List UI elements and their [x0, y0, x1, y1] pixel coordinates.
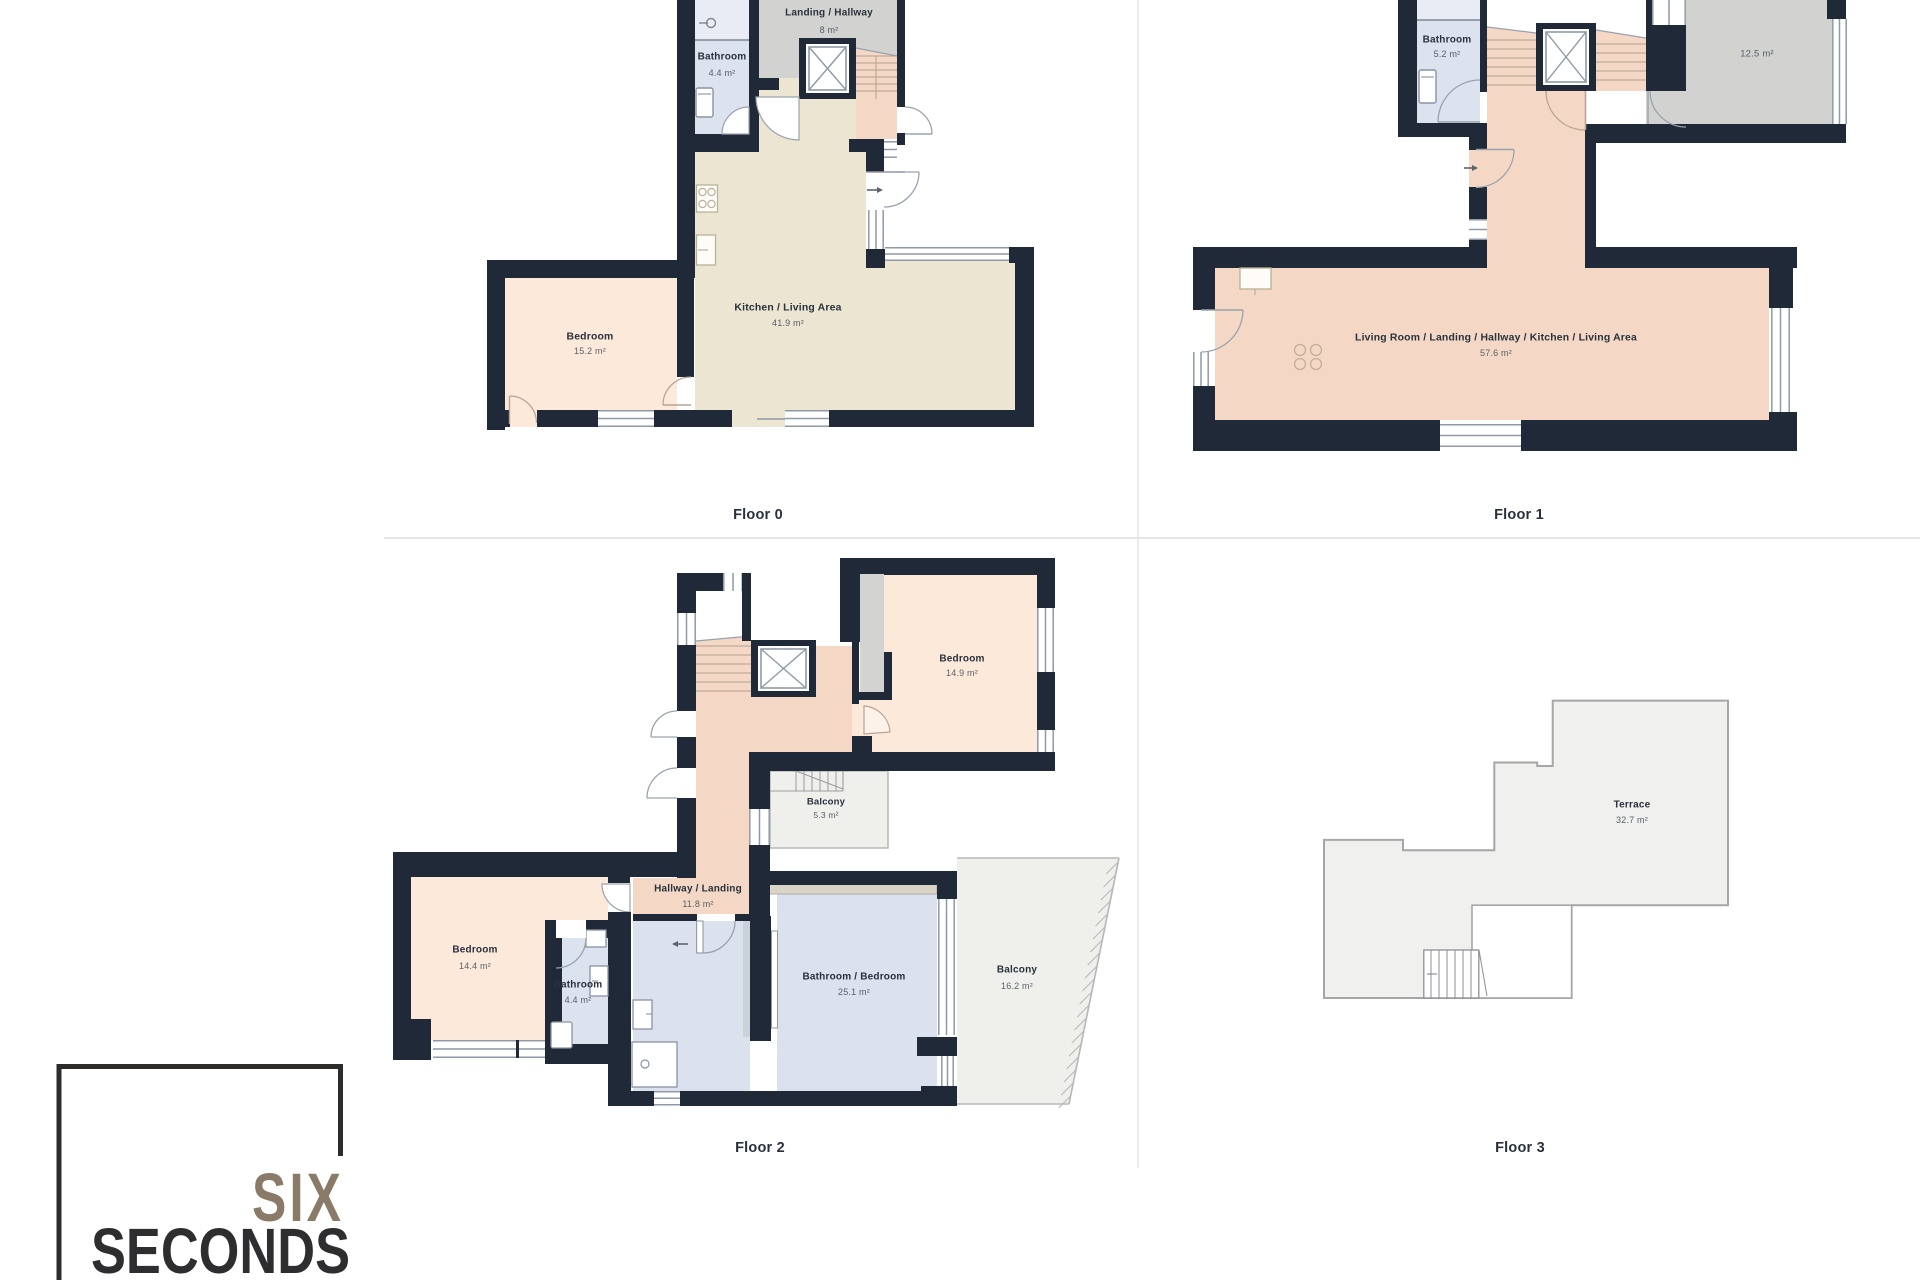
- svg-text:14.9 m²: 14.9 m²: [946, 668, 978, 678]
- svg-text:Terrace: Terrace: [1614, 800, 1651, 811]
- svg-text:Floor 0: Floor 0: [733, 507, 783, 523]
- svg-text:Living Room / Landing / Hallwa: Living Room / Landing / Hallway / Kitche…: [1355, 333, 1637, 344]
- svg-text:Bedroom: Bedroom: [452, 945, 497, 956]
- svg-text:Bathroom / Bedroom: Bathroom / Bedroom: [802, 972, 905, 983]
- svg-text:41.9 m²: 41.9 m²: [772, 318, 804, 328]
- svg-text:Floor 3: Floor 3: [1495, 1140, 1545, 1156]
- svg-text:8 m²: 8 m²: [820, 25, 839, 35]
- svg-text:Bedroom: Bedroom: [566, 332, 613, 343]
- svg-text:14.4 m²: 14.4 m²: [459, 961, 491, 971]
- svg-text:57.6 m²: 57.6 m²: [1480, 348, 1512, 358]
- svg-text:SECONDS: SECONDS: [91, 1215, 350, 1280]
- svg-text:12.5 m²: 12.5 m²: [1740, 49, 1774, 60]
- svg-text:25.1 m²: 25.1 m²: [838, 987, 870, 997]
- svg-text:Kitchen / Living Area: Kitchen / Living Area: [734, 303, 841, 314]
- svg-text:Floor 1: Floor 1: [1494, 507, 1544, 523]
- svg-text:Bedroom: Bedroom: [939, 654, 984, 665]
- svg-text:Balcony: Balcony: [997, 965, 1038, 976]
- svg-text:Bathroom: Bathroom: [554, 980, 603, 991]
- svg-text:Bathroom: Bathroom: [698, 52, 747, 63]
- svg-text:15.2 m²: 15.2 m²: [574, 346, 606, 356]
- svg-text:Landing / Hallway: Landing / Hallway: [785, 8, 873, 19]
- svg-text:5.3 m²: 5.3 m²: [813, 810, 838, 820]
- svg-text:16.2 m²: 16.2 m²: [1001, 981, 1033, 991]
- svg-text:Floor 2: Floor 2: [735, 1140, 785, 1156]
- svg-text:11.8 m²: 11.8 m²: [682, 899, 713, 909]
- svg-text:Balcony: Balcony: [807, 797, 846, 808]
- svg-text:32.7 m²: 32.7 m²: [1616, 815, 1648, 825]
- svg-text:Bathroom: Bathroom: [1423, 35, 1472, 46]
- svg-text:4.4 m²: 4.4 m²: [709, 68, 736, 78]
- svg-text:Hallway / Landing: Hallway / Landing: [654, 884, 742, 895]
- svg-text:4.4 m²: 4.4 m²: [565, 995, 592, 1005]
- svg-text:5.2 m²: 5.2 m²: [1434, 49, 1461, 59]
